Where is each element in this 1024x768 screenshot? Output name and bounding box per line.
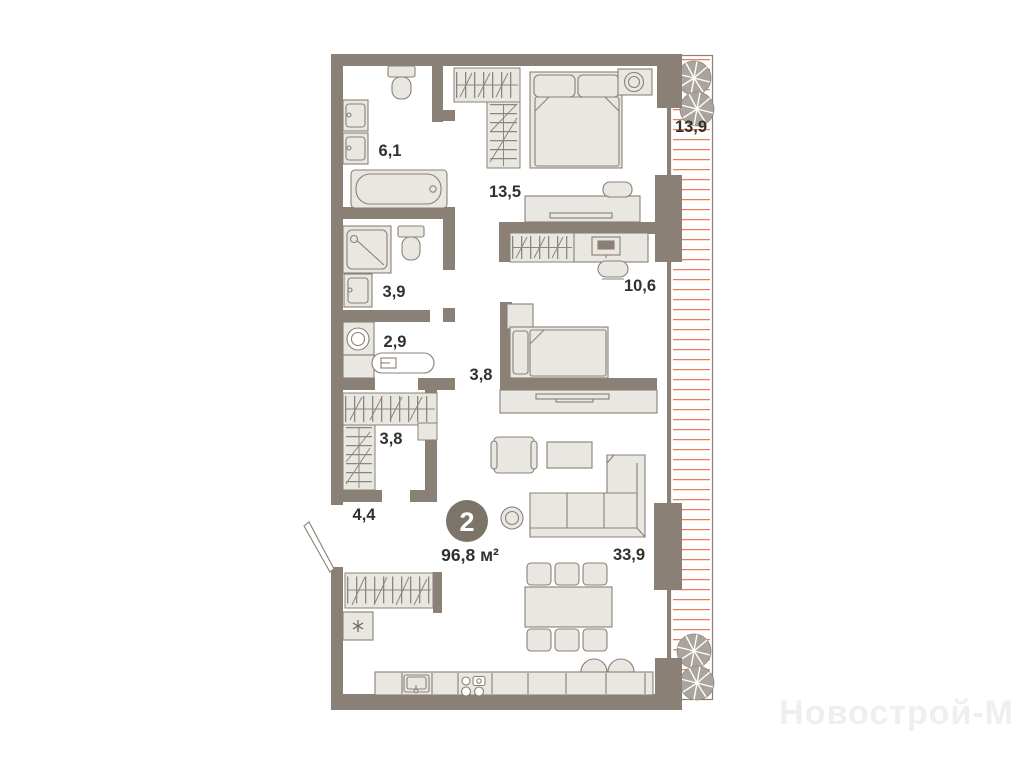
dining-chair [527,629,551,651]
terrace [671,56,715,701]
room-label-wardrobe: 3,8 [380,430,403,448]
area-badge: 2 96,8 м² [441,500,499,565]
monitor [592,237,620,258]
terrace-border [671,56,713,700]
fridge [343,612,373,640]
bedside-table [618,69,652,95]
wardrobe-closet [343,393,437,425]
bedside-table [507,304,533,329]
dining-chair [555,629,579,651]
room-label-laundry: 2,9 [384,333,407,351]
dining-set [525,563,612,651]
dining-chair [555,563,579,585]
wardrobe-closet [343,425,375,490]
room-label-hallway: 3,8 [470,366,493,384]
bar-stool [608,659,634,672]
sink [344,274,372,307]
study-furniture [507,233,648,378]
tv [550,213,612,218]
tree-symbol [677,634,711,668]
tree-symbol [680,666,714,700]
kitchen-counter [375,672,653,696]
room-label-entry: 4,4 [353,506,377,524]
floor-plan-page: 6,1 13,5 13,9 3,9 10,6 2,9 3,8 3,8 4,4 3… [0,0,1024,768]
toilet [388,66,415,99]
room-label-terrace: 13,9 [675,118,707,136]
room-label-study: 10,6 [624,277,656,295]
shelf [418,423,437,440]
living-kitchen-furniture [375,390,657,696]
room-label-bathroom: 6,1 [379,142,402,160]
dining-chair [527,563,551,585]
bed-double [530,72,622,168]
toilet [398,226,424,260]
room-label-living-kitchen: 33,9 [613,546,645,564]
tree-symbol [677,61,711,95]
wardrobe-closet [454,68,520,168]
bedroom-furniture [454,68,652,222]
dresser [525,196,640,222]
desk [574,233,648,262]
total-area: 96,8 м² [441,545,499,565]
sink [343,133,368,164]
wardrobe-closet [345,573,433,608]
dining-chair [583,629,607,651]
floor-plan: 6,1 13,5 13,9 3,9 10,6 2,9 3,8 3,8 4,4 3… [0,0,1024,768]
wardrobe-closet [510,233,574,262]
sink [343,100,368,131]
watermark: Новострой-М [779,694,1014,733]
kitchen-sink [404,675,429,693]
laundry-board [372,353,434,373]
hall-furniture [343,573,433,640]
laundry-counter [343,355,374,378]
shower [343,226,391,273]
entry-door [304,522,334,572]
room-label-shower-room: 3,9 [383,283,406,301]
bed-single [510,327,608,378]
bathtub [351,170,447,208]
tv-stand [500,390,657,413]
tv [536,394,609,399]
side-table [501,507,523,529]
rooms-count: 2 [459,507,474,537]
dining-table [525,587,612,627]
washing-machine [343,322,374,355]
bathroom-furniture [343,66,447,208]
room-label-bedroom: 13,5 [489,183,521,201]
bar-stool [581,659,607,672]
dining-chair [583,563,607,585]
coffee-table [547,442,592,468]
armchair [491,437,537,473]
chair [603,182,632,197]
